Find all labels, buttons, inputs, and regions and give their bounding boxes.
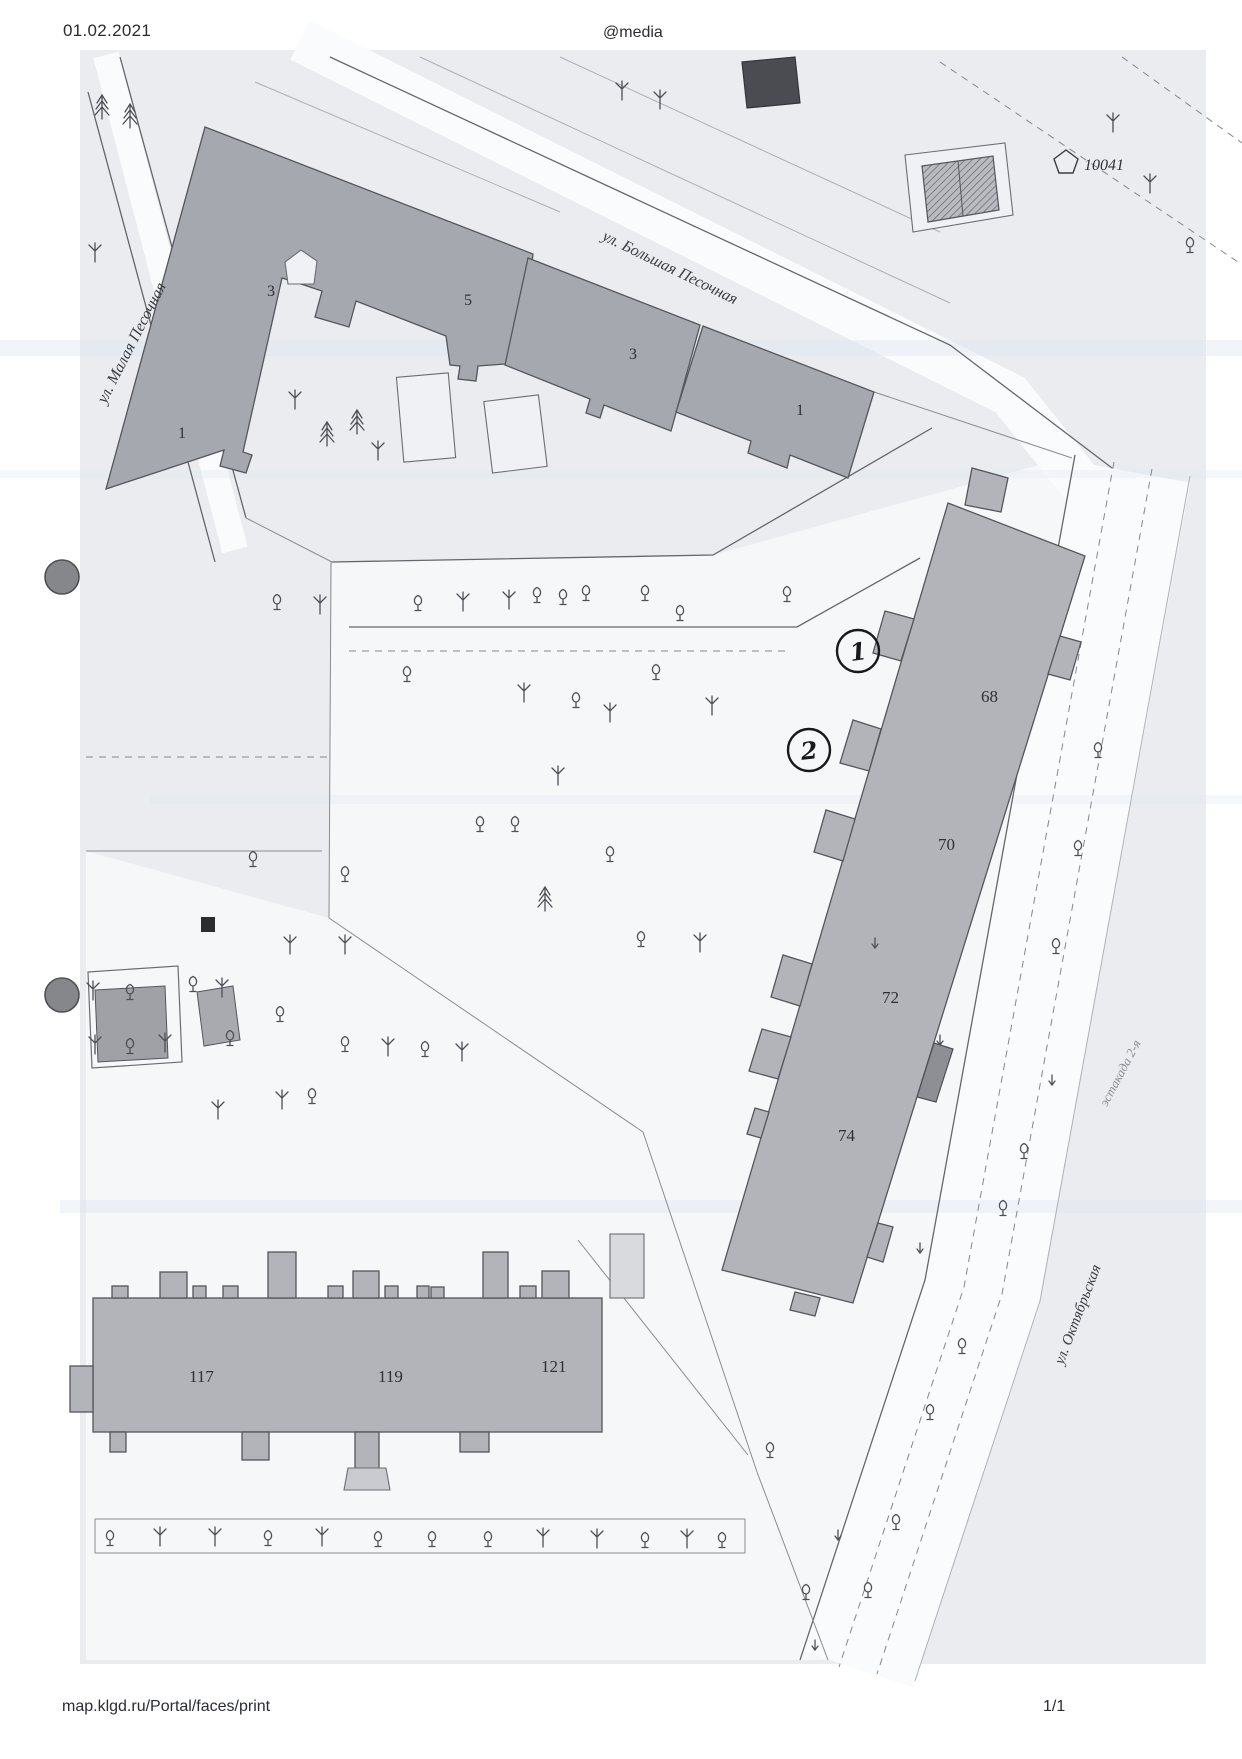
stair-tower	[268, 1252, 296, 1298]
balcony	[520, 1286, 536, 1298]
balcony	[110, 1432, 126, 1452]
balcony	[353, 1271, 379, 1298]
balcony	[193, 1286, 206, 1298]
scan-streak	[0, 470, 1242, 478]
building-117-121	[93, 1298, 602, 1432]
punch-hole	[45, 560, 79, 594]
landmark-label: 10041	[1084, 157, 1124, 174]
building-dark	[742, 57, 800, 108]
house-number-1a: 1	[178, 425, 186, 442]
house-number-117: 117	[189, 1367, 214, 1386]
porch	[344, 1468, 390, 1490]
balcony	[542, 1271, 569, 1298]
balcony	[417, 1286, 429, 1298]
building-end-wing	[610, 1234, 644, 1298]
playground-court	[95, 986, 168, 1062]
balcony	[328, 1286, 343, 1298]
balcony	[223, 1286, 238, 1298]
house-number-119: 119	[378, 1367, 403, 1386]
outbuilding	[396, 373, 455, 462]
city-map: 10041	[0, 0, 1242, 1759]
house-number-68: 68	[981, 687, 998, 706]
page-indicator: 1/1	[1043, 1698, 1065, 1716]
outbuilding	[484, 395, 547, 473]
house-number-121: 121	[541, 1357, 567, 1376]
scan-streak	[150, 795, 1242, 804]
balcony	[112, 1286, 128, 1298]
punch-holes	[45, 560, 79, 1012]
utility-marker	[201, 917, 215, 932]
print-url: map.klgd.ru/Portal/faces/print	[62, 1698, 270, 1716]
house-number-3a: 3	[267, 283, 275, 300]
house-number-3b: 3	[629, 346, 637, 363]
house-number-5: 5	[464, 292, 472, 309]
side-annex	[70, 1366, 93, 1412]
stair-tower	[483, 1252, 508, 1298]
entrance-annex	[355, 1432, 379, 1470]
house-number-1b: 1	[796, 402, 804, 419]
balcony	[242, 1432, 269, 1460]
balcony	[460, 1432, 489, 1452]
punch-hole	[45, 978, 79, 1012]
house-number-74: 74	[838, 1126, 856, 1145]
scan-streak	[60, 1200, 1242, 1213]
house-number-72: 72	[882, 988, 899, 1007]
balcony	[431, 1287, 444, 1298]
annotation-number-2: 2	[798, 735, 819, 766]
house-number-70: 70	[938, 835, 955, 854]
balcony	[385, 1286, 398, 1298]
balcony	[160, 1272, 187, 1298]
